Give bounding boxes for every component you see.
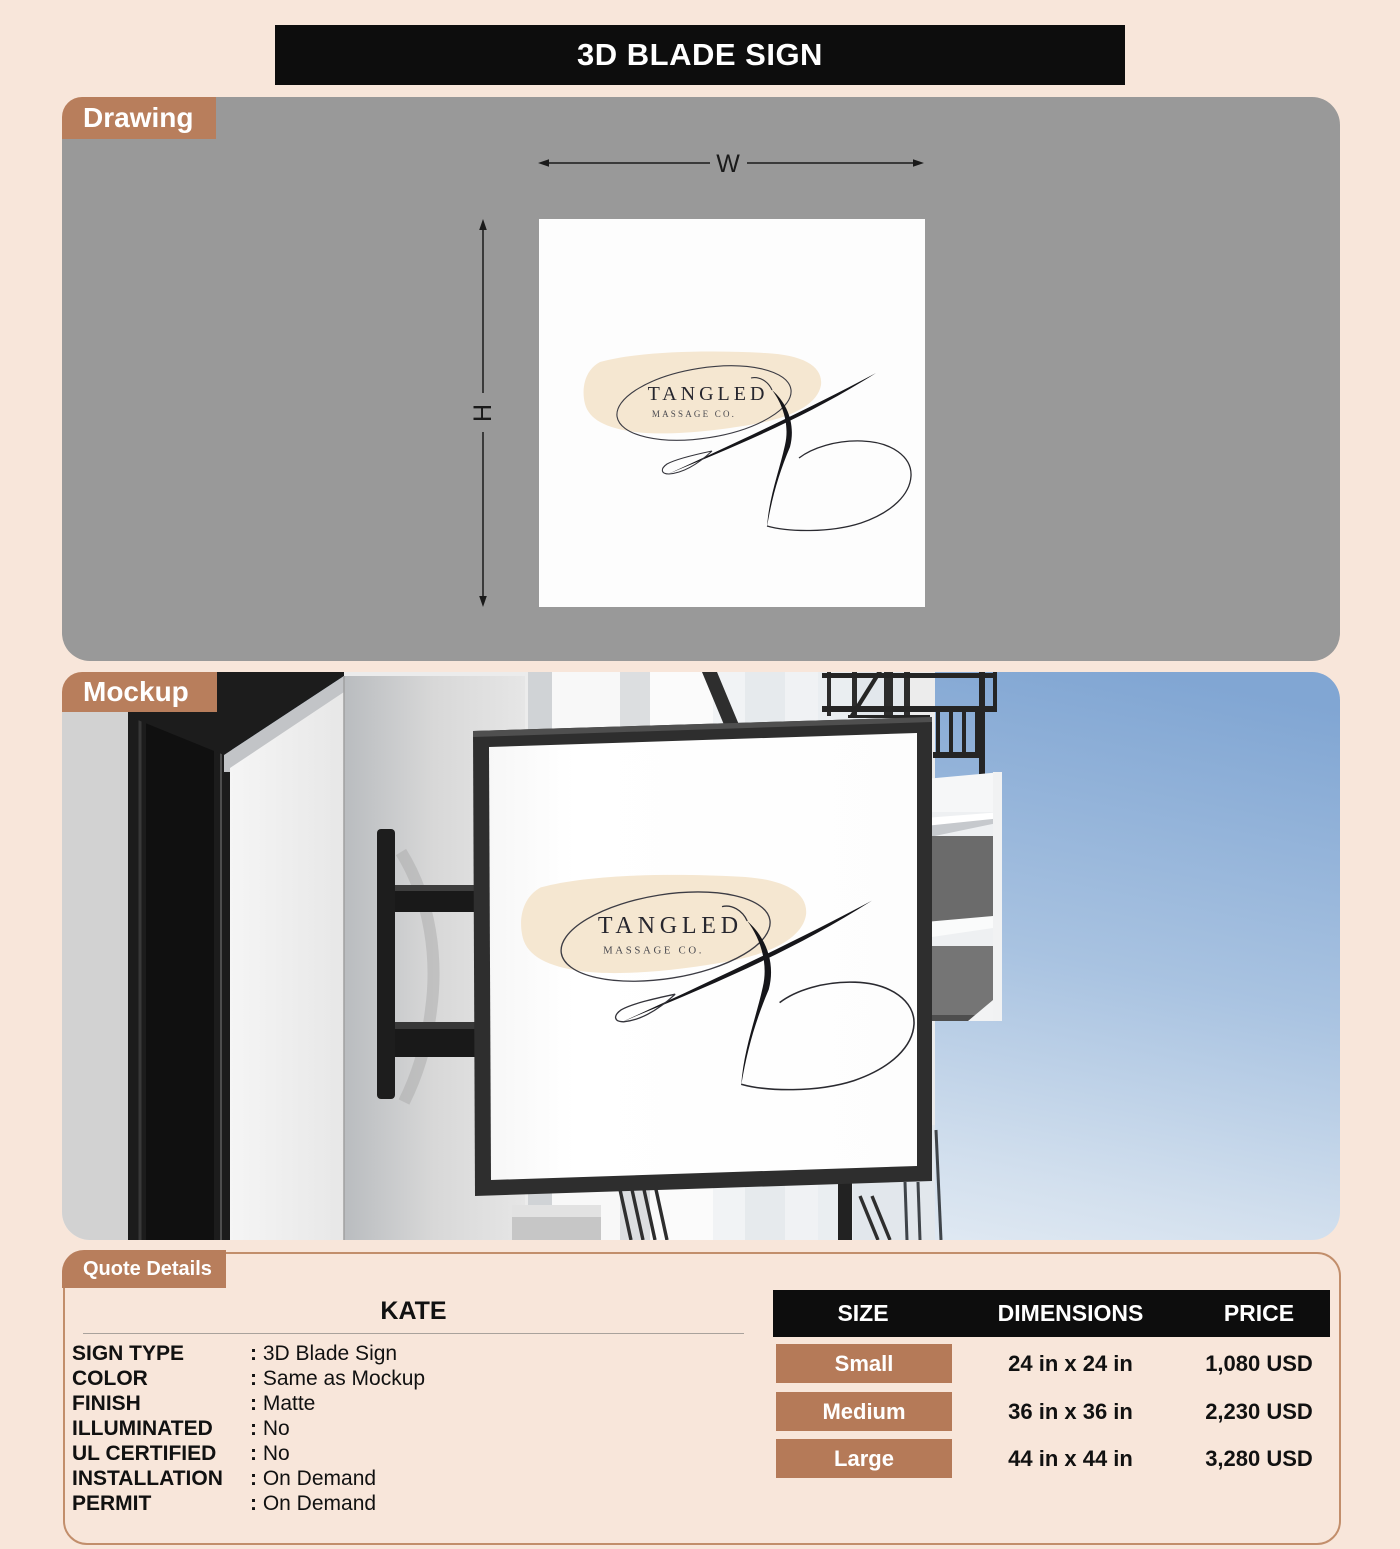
svg-text:W: W (716, 150, 740, 178)
svg-text:H: H (469, 404, 497, 422)
